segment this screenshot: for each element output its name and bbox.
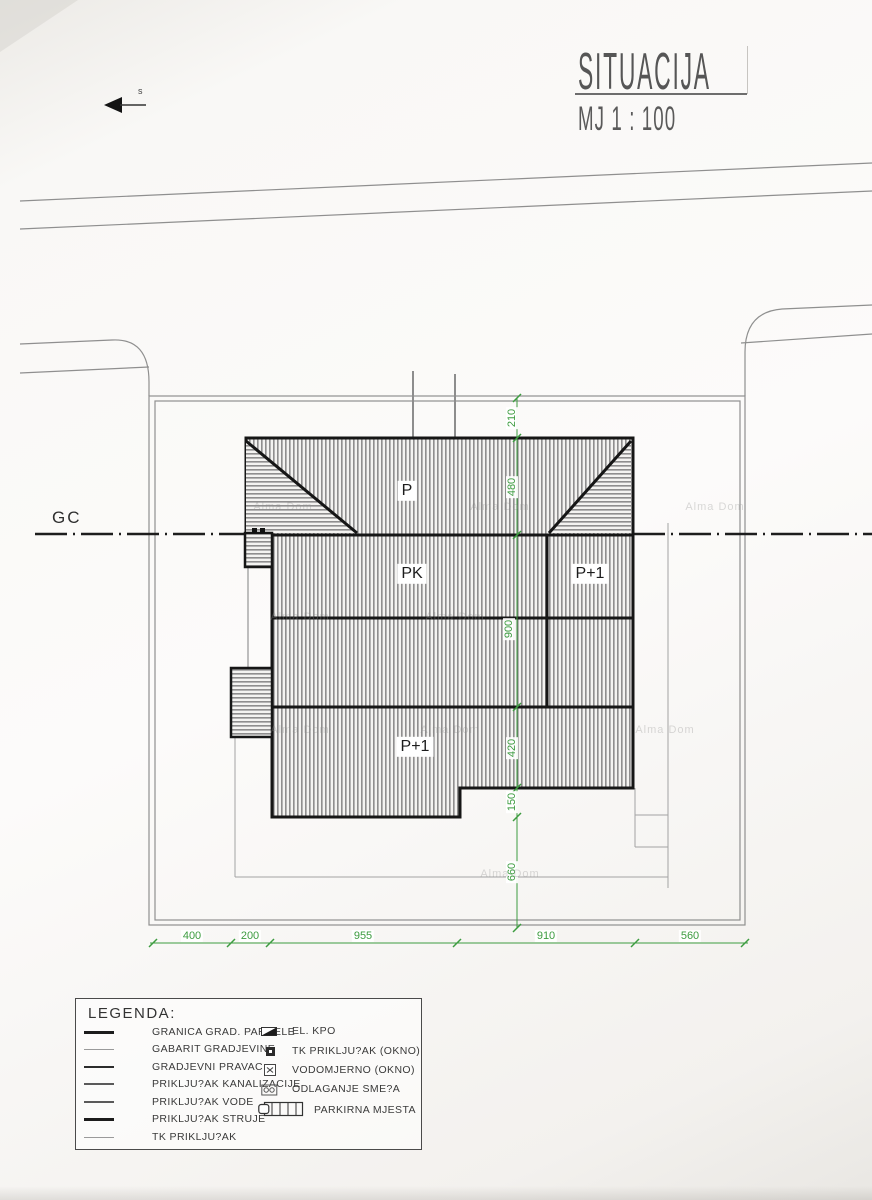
dim-910: 910: [535, 930, 557, 942]
waste-disposal-icon: [261, 1083, 279, 1096]
label-attic-pk: PK: [397, 564, 426, 584]
legend-line-sample: [84, 1137, 114, 1138]
watermark: Alma Dom: [253, 501, 312, 513]
legend-row-tk-okno: TK PRIKLJU?AK (OKNO): [76, 1044, 416, 1058]
building-footprint: [231, 438, 633, 817]
label-right-p1: P+1: [572, 564, 609, 584]
north-arrow-icon: [104, 97, 146, 113]
legend-row-vodomjerno: VODOMJERNO (OKNO): [76, 1063, 416, 1077]
watermark: Alma Dom: [270, 724, 329, 736]
water-meter-icon: [263, 1063, 278, 1078]
dim-200: 200: [239, 930, 261, 942]
title-underline: [575, 93, 747, 95]
dim-955: 955: [352, 930, 374, 942]
parking-spaces-icon: [258, 1101, 306, 1119]
dim-560: 560: [679, 930, 701, 942]
road-lines: [20, 163, 872, 396]
protrusion-left: [231, 668, 272, 737]
legend-line-sample: [84, 1118, 114, 1121]
watermark: Alma Dom: [425, 611, 484, 623]
watermark: Alma Dom: [420, 724, 479, 736]
legend-label: PARKIRNA MJESTA: [314, 1104, 416, 1116]
utility-stub-lines: [413, 371, 455, 437]
gc-label: GC: [52, 508, 82, 528]
scale-label: MJ 1 : 100: [578, 100, 676, 139]
legend-row-odlaganje: ODLAGANJE SME?A: [76, 1082, 416, 1096]
dim-150: 150: [506, 791, 518, 813]
dim-400: 400: [181, 930, 203, 942]
legend-row-el-kpo: EL. KPO: [76, 1024, 416, 1038]
watermark: Alma Dom: [635, 724, 694, 736]
legend-heading: LEGENDA:: [88, 1005, 176, 1022]
legend-label: TK PRIKLJU?AK (OKNO): [292, 1045, 420, 1057]
label-roof-p: P: [398, 481, 417, 501]
dim-420: 420: [506, 737, 518, 759]
dim-480: 480: [506, 476, 518, 498]
watermark: Alma Dom: [270, 611, 329, 623]
legend-label: VODOMJERNO (OKNO): [292, 1064, 415, 1076]
watermark: Alma Dom: [480, 868, 539, 880]
legend-row-tk: TK PRIKLJU?AK: [76, 1130, 286, 1144]
legend-box: LEGENDA: GRANICA GRAD. PARCELE GABARIT G…: [75, 998, 422, 1150]
legend-label: EL. KPO: [292, 1025, 336, 1037]
dim-210: 210: [506, 407, 518, 429]
title-border-line: [747, 46, 748, 94]
legend-row-parking: PARKIRNA MJESTA: [76, 1103, 416, 1117]
legend-label: ODLAGANJE SME?A: [292, 1083, 400, 1095]
connection-symbol: [260, 528, 265, 533]
dim-900: 900: [503, 618, 515, 640]
protrusion-upper-left: [245, 533, 272, 567]
el-kpo-icon: [261, 1025, 279, 1038]
watermark: Alma Dom: [470, 501, 529, 513]
tk-window-icon: [264, 1045, 278, 1058]
watermark: Alma Dom: [685, 501, 744, 513]
connection-symbol: [252, 528, 257, 533]
site-plan-page: SITUACIJA MJ 1 : 100 s GC P PK P+1 P+1 2…: [0, 0, 872, 1200]
north-label: s: [138, 86, 143, 96]
label-bottom-p1: P+1: [397, 737, 434, 757]
legend-label: TK PRIKLJU?AK: [152, 1131, 237, 1143]
